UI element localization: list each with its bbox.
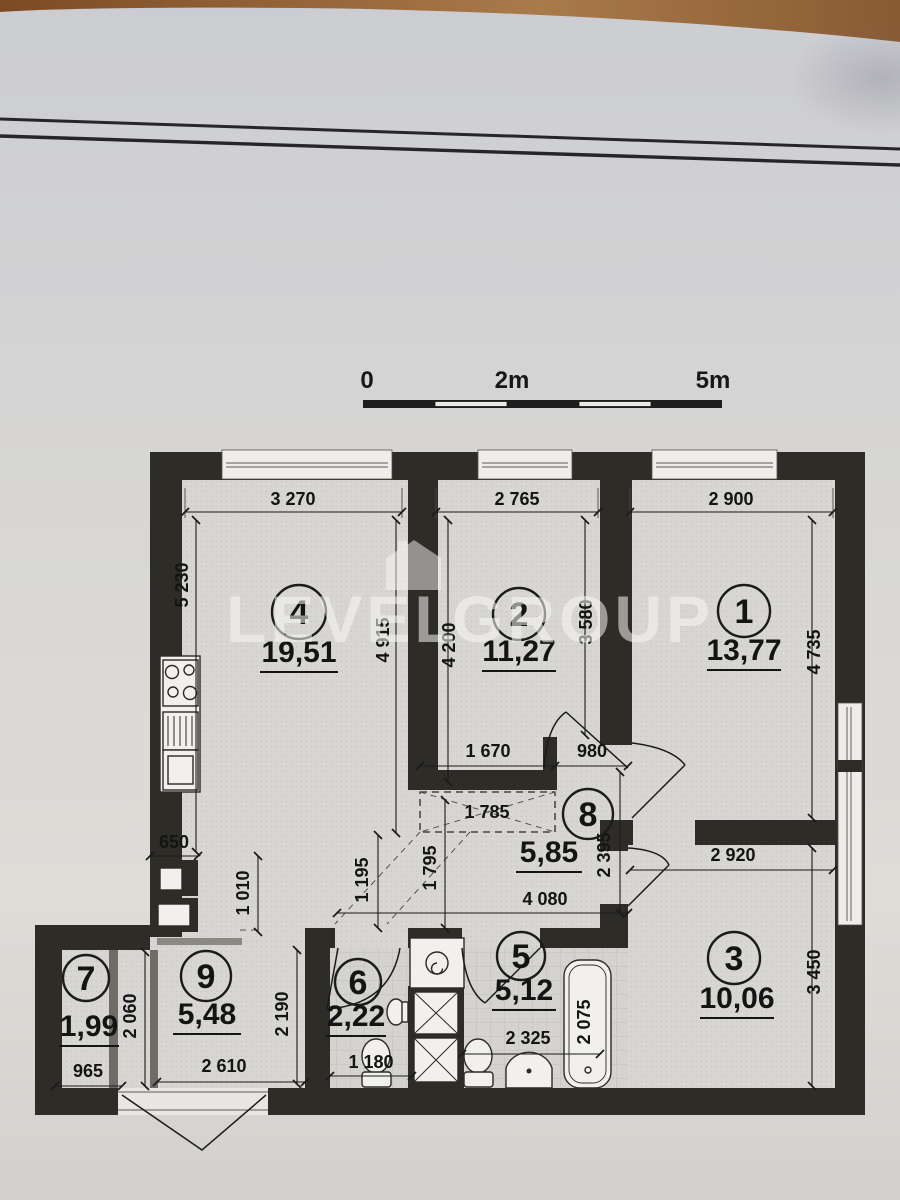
dim-label: 2 190 [272, 991, 292, 1036]
room1-number: 1 [735, 593, 754, 631]
toilet-icon [464, 1039, 492, 1073]
room8-area: 5,85 [520, 836, 578, 869]
scale-zero-label: 0 [360, 367, 373, 394]
dim-label: 2 075 [574, 999, 594, 1044]
dim-label: 5 230 [172, 562, 192, 607]
dim-label: 965 [73, 1061, 103, 1081]
dim-label: 2 395 [594, 832, 614, 877]
window-room2 [478, 450, 572, 479]
room6-number: 6 [349, 964, 368, 1002]
floorplan-drawing: 0 2m 5m [0, 0, 900, 1200]
dim-label: 3 450 [804, 949, 824, 994]
dim-label: 1 670 [465, 741, 510, 761]
room3-number: 3 [725, 940, 744, 978]
dim-label: 650 [159, 832, 189, 852]
dim-label: 1 195 [352, 857, 372, 902]
floorplan-photo: 0 2m 5m [0, 0, 900, 1200]
dim-label: 2 325 [505, 1028, 550, 1048]
dim-label: 1 785 [464, 802, 509, 822]
dim-label: 4 735 [804, 629, 824, 674]
watermark-brand-right: GROUP [452, 582, 714, 656]
room5-area: 5,12 [495, 974, 553, 1007]
room1-area: 13,77 [706, 634, 781, 667]
dim-label: 2 765 [494, 489, 539, 509]
room5-number: 5 [512, 938, 531, 976]
watermark-brand-left: LEVEL [226, 582, 459, 656]
scale-2m-label: 2m [495, 367, 530, 394]
scale-5m-label: 5m [696, 367, 731, 394]
dim-label: 4 080 [522, 889, 567, 909]
dim-label: 2 900 [708, 489, 753, 509]
room9-number: 9 [197, 958, 216, 996]
window-room4 [222, 450, 392, 479]
dim-label: 1 795 [420, 845, 440, 890]
dim-label: 980 [577, 741, 607, 761]
dim-label: 3 270 [270, 489, 315, 509]
room7-number: 7 [77, 960, 96, 998]
room8-number: 8 [579, 796, 598, 834]
dim-label: 2 920 [710, 845, 755, 865]
dim-label: 2 060 [120, 993, 140, 1038]
room6-area: 2,22 [327, 1000, 385, 1033]
room3-area: 10,06 [699, 982, 774, 1015]
window-room1 [652, 450, 777, 479]
dim-label: 2 610 [201, 1056, 246, 1076]
dim-label: 1 010 [233, 870, 253, 915]
balcony-window [838, 703, 862, 925]
room7-area: 1,99 [60, 1010, 118, 1043]
dim-label: 1 180 [348, 1052, 393, 1072]
room9-area: 5,48 [178, 998, 236, 1031]
